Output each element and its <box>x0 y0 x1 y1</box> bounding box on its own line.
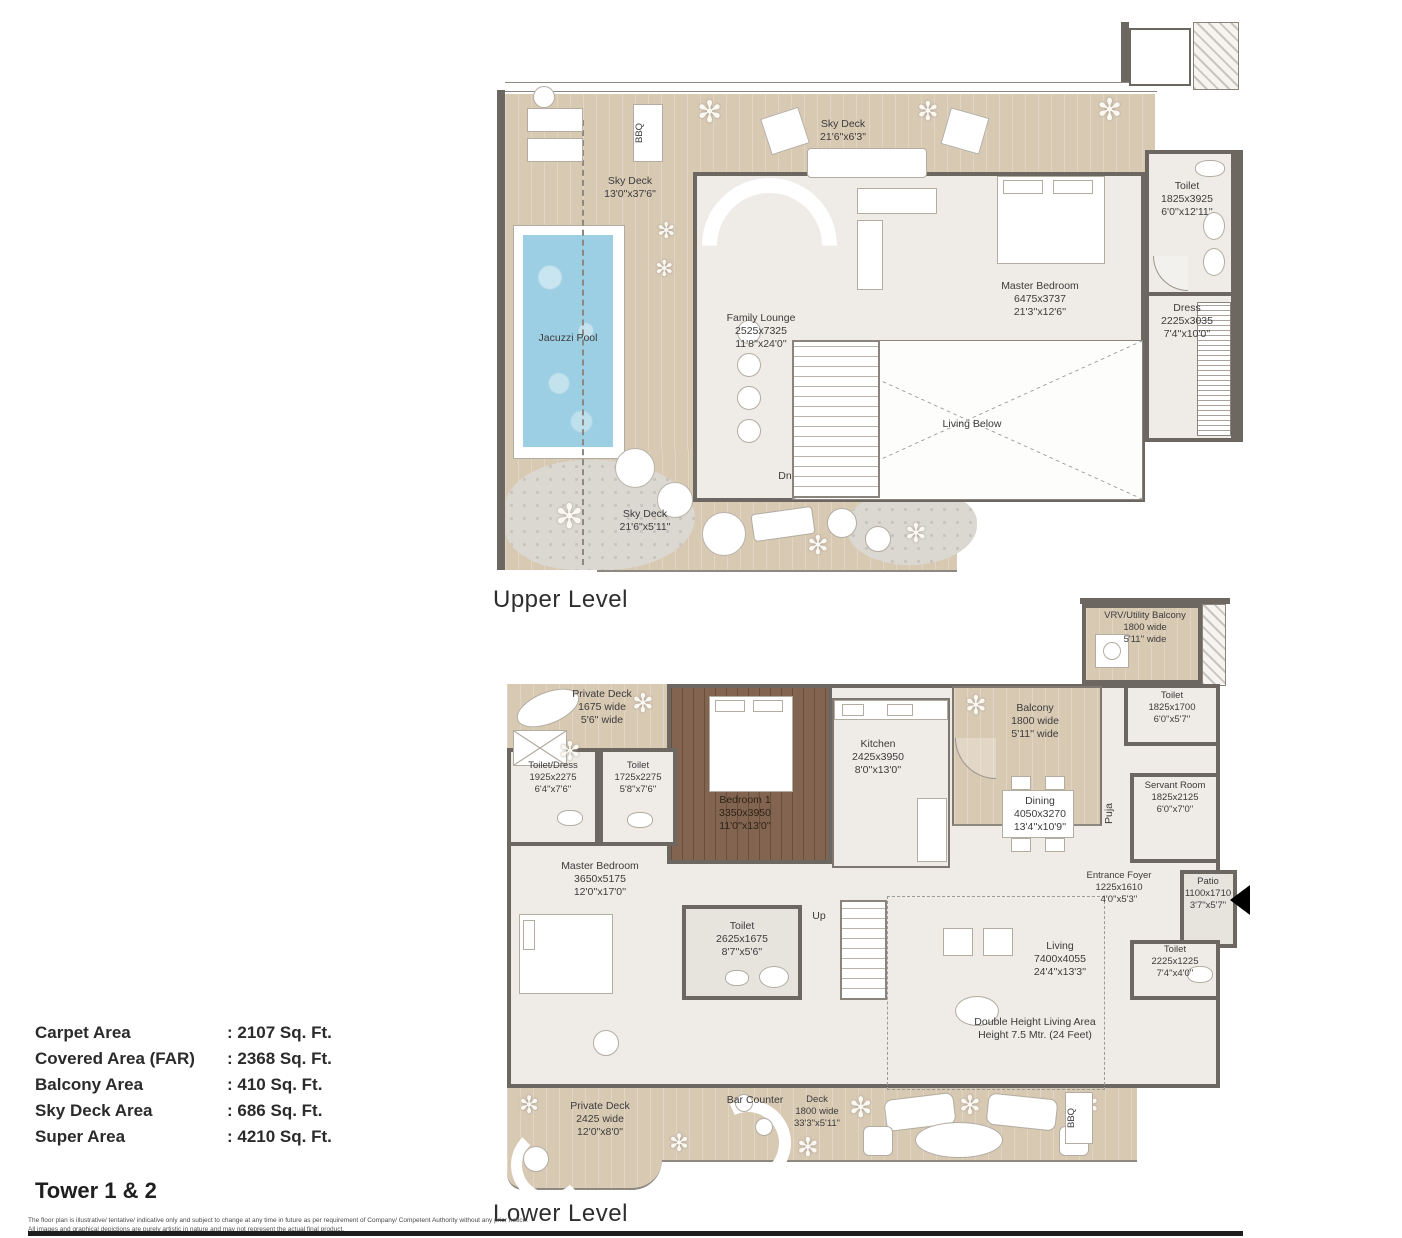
sofa-icon <box>807 148 927 178</box>
stat-row-covered-area: Covered Area (FAR) 2368 Sq. Ft. <box>35 1046 332 1072</box>
tree-icon <box>697 98 722 128</box>
room-label-sky-deck-top: Sky Deck 21'6"x6'3" <box>820 118 866 144</box>
room-label-entrance-foyer: Entrance Foyer 1225x1610 4'0''x5'3'' <box>1087 870 1152 906</box>
tree-icon <box>797 1134 819 1160</box>
toilet-fixture-icon <box>1195 160 1225 177</box>
upper-balcony-box <box>1129 28 1191 86</box>
room-label-bedroom-1: Bedroom 1 3350x3950 11'0''x13'0'' <box>719 794 771 833</box>
stat-value: 686 Sq. Ft. <box>227 1098 322 1124</box>
bbq-label: BBQ <box>1066 1093 1092 1143</box>
tree-icon <box>655 258 673 280</box>
room-label-private-deck-top: Private Deck 1675 wide 5'6'' wide <box>572 688 632 727</box>
room-label-sky-deck-left: Sky Deck 13'0"x37'6" <box>604 175 656 201</box>
room-label-deck: Deck 1800 wide 33'3"x5'11" <box>794 1094 840 1130</box>
room-label-dress: Dress 2225x3035 7'4''x10'0'' <box>1161 302 1213 341</box>
room-label-toilet-vrv: Toilet 1825x1700 6'0''x5'7'' <box>1148 690 1195 726</box>
toilet-fixture-icon <box>557 810 583 826</box>
ottoman-icon <box>737 419 761 443</box>
tree-icon <box>849 1094 872 1122</box>
room-label-master-bedroom-upper: Master Bedroom 6475x3737 21'3''x12'6'' <box>1001 280 1079 319</box>
stat-label: Carpet Area <box>35 1020 227 1046</box>
tower-title: Tower 1 & 2 <box>35 1178 157 1204</box>
chair-icon <box>1011 838 1031 852</box>
room-label-toilet-2: Toilet 1725x2275 5'8''x7'6'' <box>614 760 661 796</box>
stat-label: Super Area <box>35 1124 227 1150</box>
room-label-toilet-upper: Toilet 1825x3925 6'0''x12'11'' <box>1161 180 1213 219</box>
room-label-vrv-balcony: VRV/Utility Balcony 1800 wide 5'11'' wid… <box>1099 610 1191 646</box>
disclaimer-line-1: The floor plan is illustrative/ tentativ… <box>28 1216 528 1225</box>
ottoman-icon <box>737 386 761 410</box>
room-label-up: Up <box>812 910 825 923</box>
chair-icon <box>1045 838 1065 852</box>
stat-row-super-area: Super Area 4210 Sq. Ft. <box>35 1124 332 1150</box>
room-label-patio: Patio 1100x1710 3'7"x5'7" <box>1185 876 1231 912</box>
stat-label: Sky Deck Area <box>35 1098 227 1124</box>
pillow-icon <box>523 920 535 950</box>
page-bottom-bar <box>28 1231 1243 1236</box>
stat-value: 2368 Sq. Ft. <box>227 1046 332 1072</box>
sink-icon <box>842 704 864 716</box>
lounger-icon <box>527 138 583 162</box>
room-label-jacuzzi: Jacuzzi Pool <box>539 332 598 345</box>
stat-value: 410 Sq. Ft. <box>227 1072 322 1098</box>
side-table-icon <box>533 86 555 108</box>
hob-icon <box>887 704 913 716</box>
stone-icon <box>615 448 655 488</box>
room-label-toilet-patio: Toilet 2225x1225 7'4''x4'0'' <box>1151 944 1198 980</box>
tree-icon <box>555 500 584 534</box>
armchair-icon <box>983 928 1013 956</box>
pillow-icon <box>1003 180 1043 194</box>
stone-icon <box>702 512 746 556</box>
ottoman-icon <box>593 1030 619 1056</box>
room-label-sky-deck-bottom: Sky Deck 21'6"x5'11" <box>620 508 671 534</box>
room-label-master-bedroom-lower: Master Bedroom 3650x5175 12'0''x17'0'' <box>561 860 639 899</box>
bar-stool-icon <box>755 1118 773 1136</box>
stat-value: 2107 Sq. Ft. <box>227 1020 332 1046</box>
tree-icon <box>959 1092 981 1118</box>
room-label-dn: Dn <box>778 470 791 483</box>
stat-label: Balcony Area <box>35 1072 227 1098</box>
tree-icon <box>917 98 939 124</box>
chair-icon <box>1045 776 1065 790</box>
room-label-toilet-dress: Toilet/Dress 1925x2275 6'4''x7'6'' <box>528 760 578 796</box>
bbq-label: BBQ <box>634 105 662 161</box>
sink-icon <box>1203 248 1225 276</box>
deck-railing <box>505 82 1157 92</box>
round-table-icon <box>523 1146 549 1172</box>
round-chair-icon <box>865 526 891 552</box>
wall-segment <box>1235 150 1243 442</box>
toilet-fixture-icon <box>627 812 653 828</box>
lounger-icon <box>527 108 583 132</box>
room-label-private-deck-bottom: Private Deck 2425 wide 12'0"x8'0" <box>570 1100 630 1139</box>
stairs-down-icon <box>792 340 880 498</box>
room-label-double-height: Double Height Living Area Height 7.5 Mtr… <box>974 1016 1095 1042</box>
pillow-icon <box>715 700 745 712</box>
area-statistics: Carpet Area 2107 Sq. Ft. Covered Area (F… <box>35 1020 332 1150</box>
room-label-bar-counter: Bar Counter <box>727 1094 784 1107</box>
upper-level-caption: Upper Level <box>493 586 628 614</box>
bbq-counter: BBQ <box>1065 1092 1093 1144</box>
oval-table-icon <box>915 1122 1003 1158</box>
stat-value: 4210 Sq. Ft. <box>227 1124 332 1150</box>
stat-row-carpet-area: Carpet Area 2107 Sq. Ft. <box>35 1020 332 1046</box>
room-label-toilet-3: Toilet 2625x1675 8'7''x5'6'' <box>716 920 768 959</box>
tree-icon <box>965 692 987 718</box>
wall-segment <box>1121 22 1129 88</box>
ottoman-icon <box>737 353 761 377</box>
room-label-dining: Dining 4050x3270 13'4''x10'9'' <box>1011 794 1069 835</box>
kitchen-island-icon <box>917 798 947 862</box>
pillow-icon <box>1053 180 1093 194</box>
entrance-arrow-icon <box>1230 885 1250 915</box>
room-label-puja: Puja <box>1103 790 1115 836</box>
double-height-boundary <box>887 896 1105 1090</box>
tree-icon <box>519 1094 539 1118</box>
round-chair-icon <box>827 508 857 538</box>
lower-level-plan: BBQ VRV/Utility Balcony 1800 wide 5'11''… <box>497 598 1245 1198</box>
armchair-icon <box>863 1126 893 1156</box>
chair-icon <box>1011 776 1031 790</box>
room-label-kitchen: Kitchen 2425x3950 8'0''x13'0'' <box>852 738 904 777</box>
stat-label: Covered Area (FAR) <box>35 1046 227 1072</box>
upper-level-plan: BBQ Sky Deck 21'6"x6'3" Sky Deck 13'0"x3… <box>497 20 1245 585</box>
room-label-balcony: Balcony 1800 wide 5'11'' wide <box>1011 702 1059 741</box>
tree-icon <box>807 532 829 558</box>
tree-icon <box>1097 96 1122 126</box>
sink-icon <box>759 966 789 988</box>
window-hatch <box>1202 604 1226 686</box>
toilet-fixture-icon <box>725 970 749 986</box>
sofa-icon <box>857 188 937 214</box>
tree-icon <box>669 1132 689 1156</box>
room-label-servant-room: Servant Room 1825x2125 6'0''x7'0'' <box>1145 780 1206 816</box>
tree-icon <box>657 220 675 242</box>
room-label-living: Living 7400x4055 24'4''x13'3'' <box>1034 940 1086 979</box>
pillow-icon <box>753 700 783 712</box>
sofa-icon <box>857 220 883 290</box>
stat-row-balcony-area: Balcony Area 410 Sq. Ft. <box>35 1072 332 1098</box>
room-label-living-below: Living Below <box>943 418 1002 431</box>
tree-icon <box>905 520 927 546</box>
stairs-up-icon <box>840 900 887 1000</box>
armchair-icon <box>943 928 973 956</box>
room-label-family-lounge: Family Lounge 2525x7325 11'8''x24'0'' <box>727 312 796 351</box>
bbq-counter: BBQ <box>633 104 663 162</box>
wall-segment <box>497 90 505 570</box>
floorplan-page: { "upper": { "caption": "Upper Level", "… <box>0 0 1402 1238</box>
stat-row-sky-deck-area: Sky Deck Area 686 Sq. Ft. <box>35 1098 332 1124</box>
tree-icon <box>632 690 654 716</box>
window-hatch <box>1193 22 1239 90</box>
